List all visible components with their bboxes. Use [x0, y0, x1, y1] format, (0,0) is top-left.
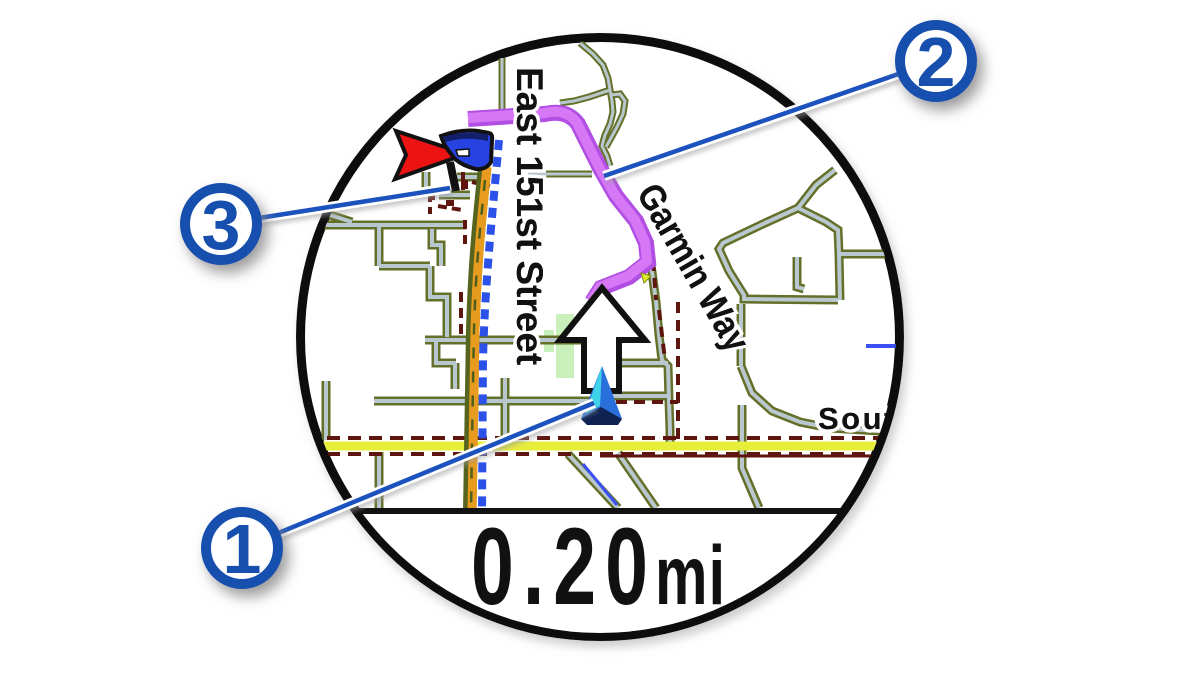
svg-text:2: 2	[917, 23, 956, 101]
svg-text:0.20: 0.20	[471, 506, 648, 629]
svg-text:3: 3	[202, 186, 241, 264]
svg-text:1: 1	[223, 510, 262, 588]
svg-text:East 151st Street: East 151st Street	[509, 67, 550, 365]
svg-text:mi: mi	[655, 529, 725, 623]
